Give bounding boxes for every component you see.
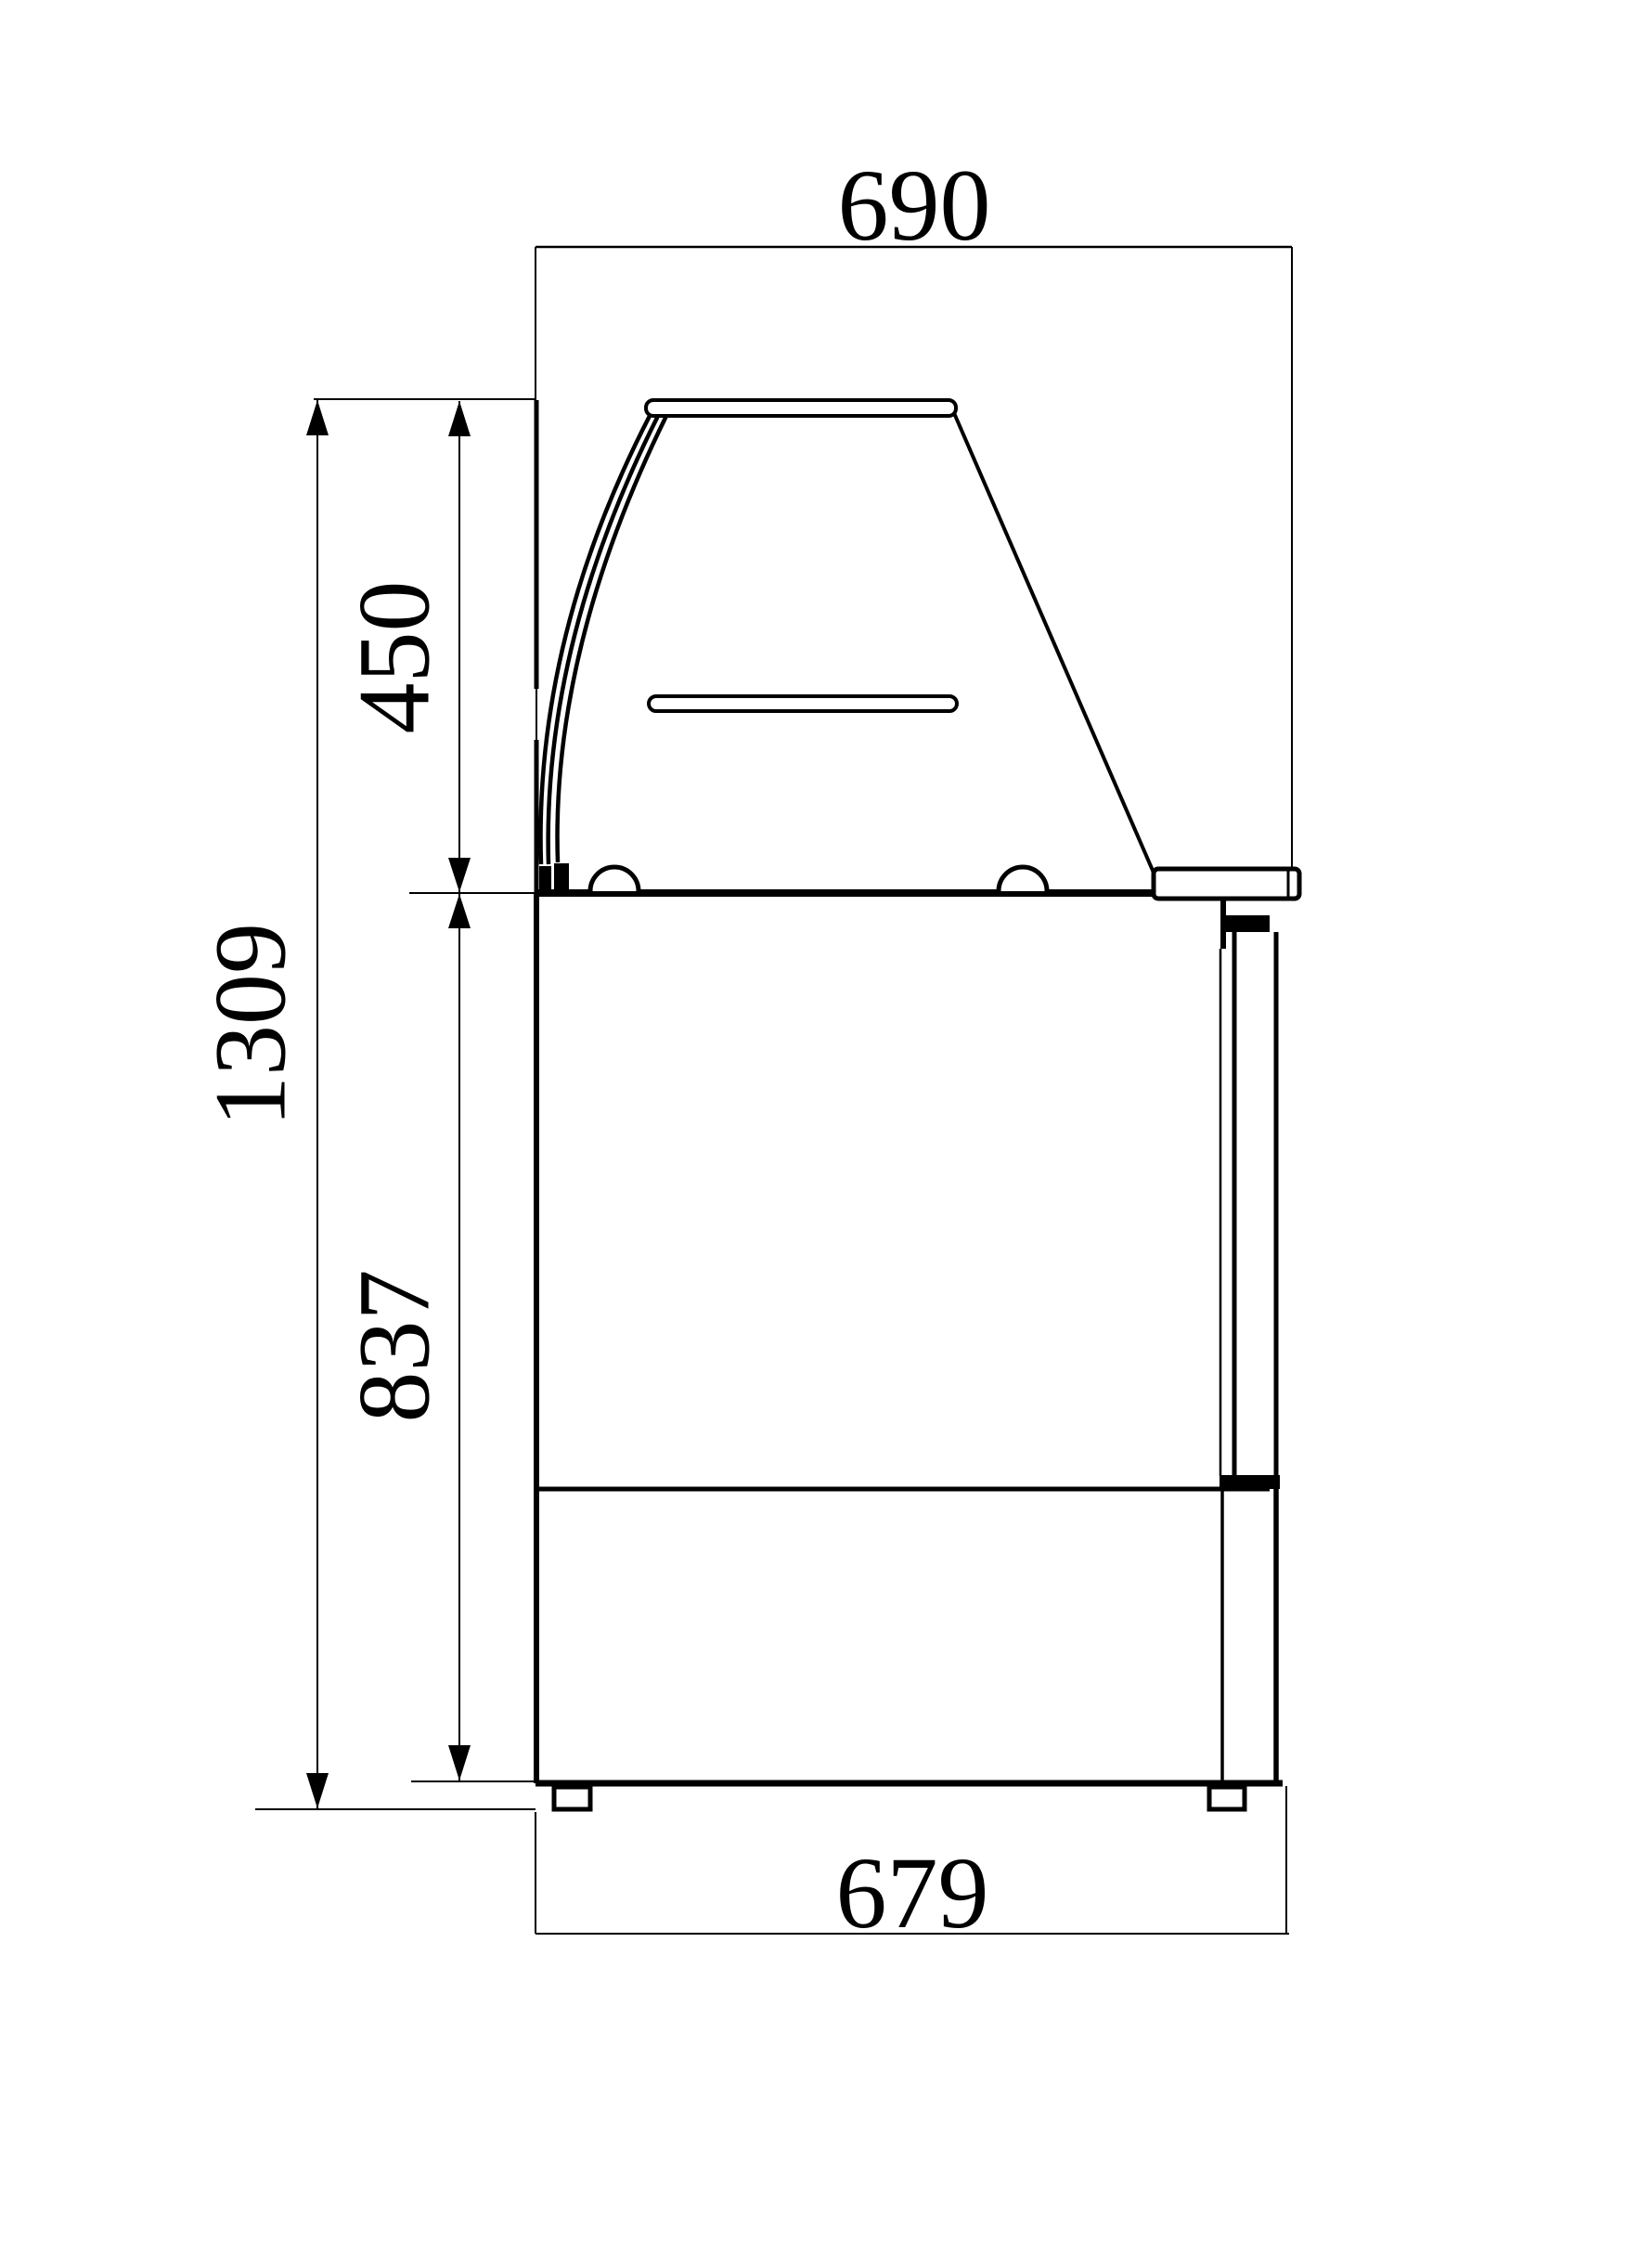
display-shelf	[649, 696, 957, 711]
glass-seal-block-left	[539, 866, 551, 893]
sheet-background	[0, 0, 1652, 2266]
dim-label-base-width: 679	[836, 1836, 989, 1949]
drawing-sheet: 690 450 1309 837 679	[0, 0, 1652, 2266]
dim-label-body-height: 837	[337, 1270, 450, 1423]
dim-label-glass-section-height: 450	[337, 581, 450, 734]
foot-right	[1209, 1787, 1245, 1809]
dim-label-overall-height: 1309	[193, 923, 306, 1127]
technical-drawing: 690 450 1309 837 679	[0, 0, 1652, 2266]
foot-left	[554, 1787, 590, 1809]
door-hinge-block	[1220, 915, 1270, 932]
glass-seal-block-right	[554, 863, 569, 893]
rear-ledge	[1154, 869, 1299, 899]
glass-top-lid	[646, 400, 956, 416]
dim-label-top-width: 690	[838, 149, 991, 262]
